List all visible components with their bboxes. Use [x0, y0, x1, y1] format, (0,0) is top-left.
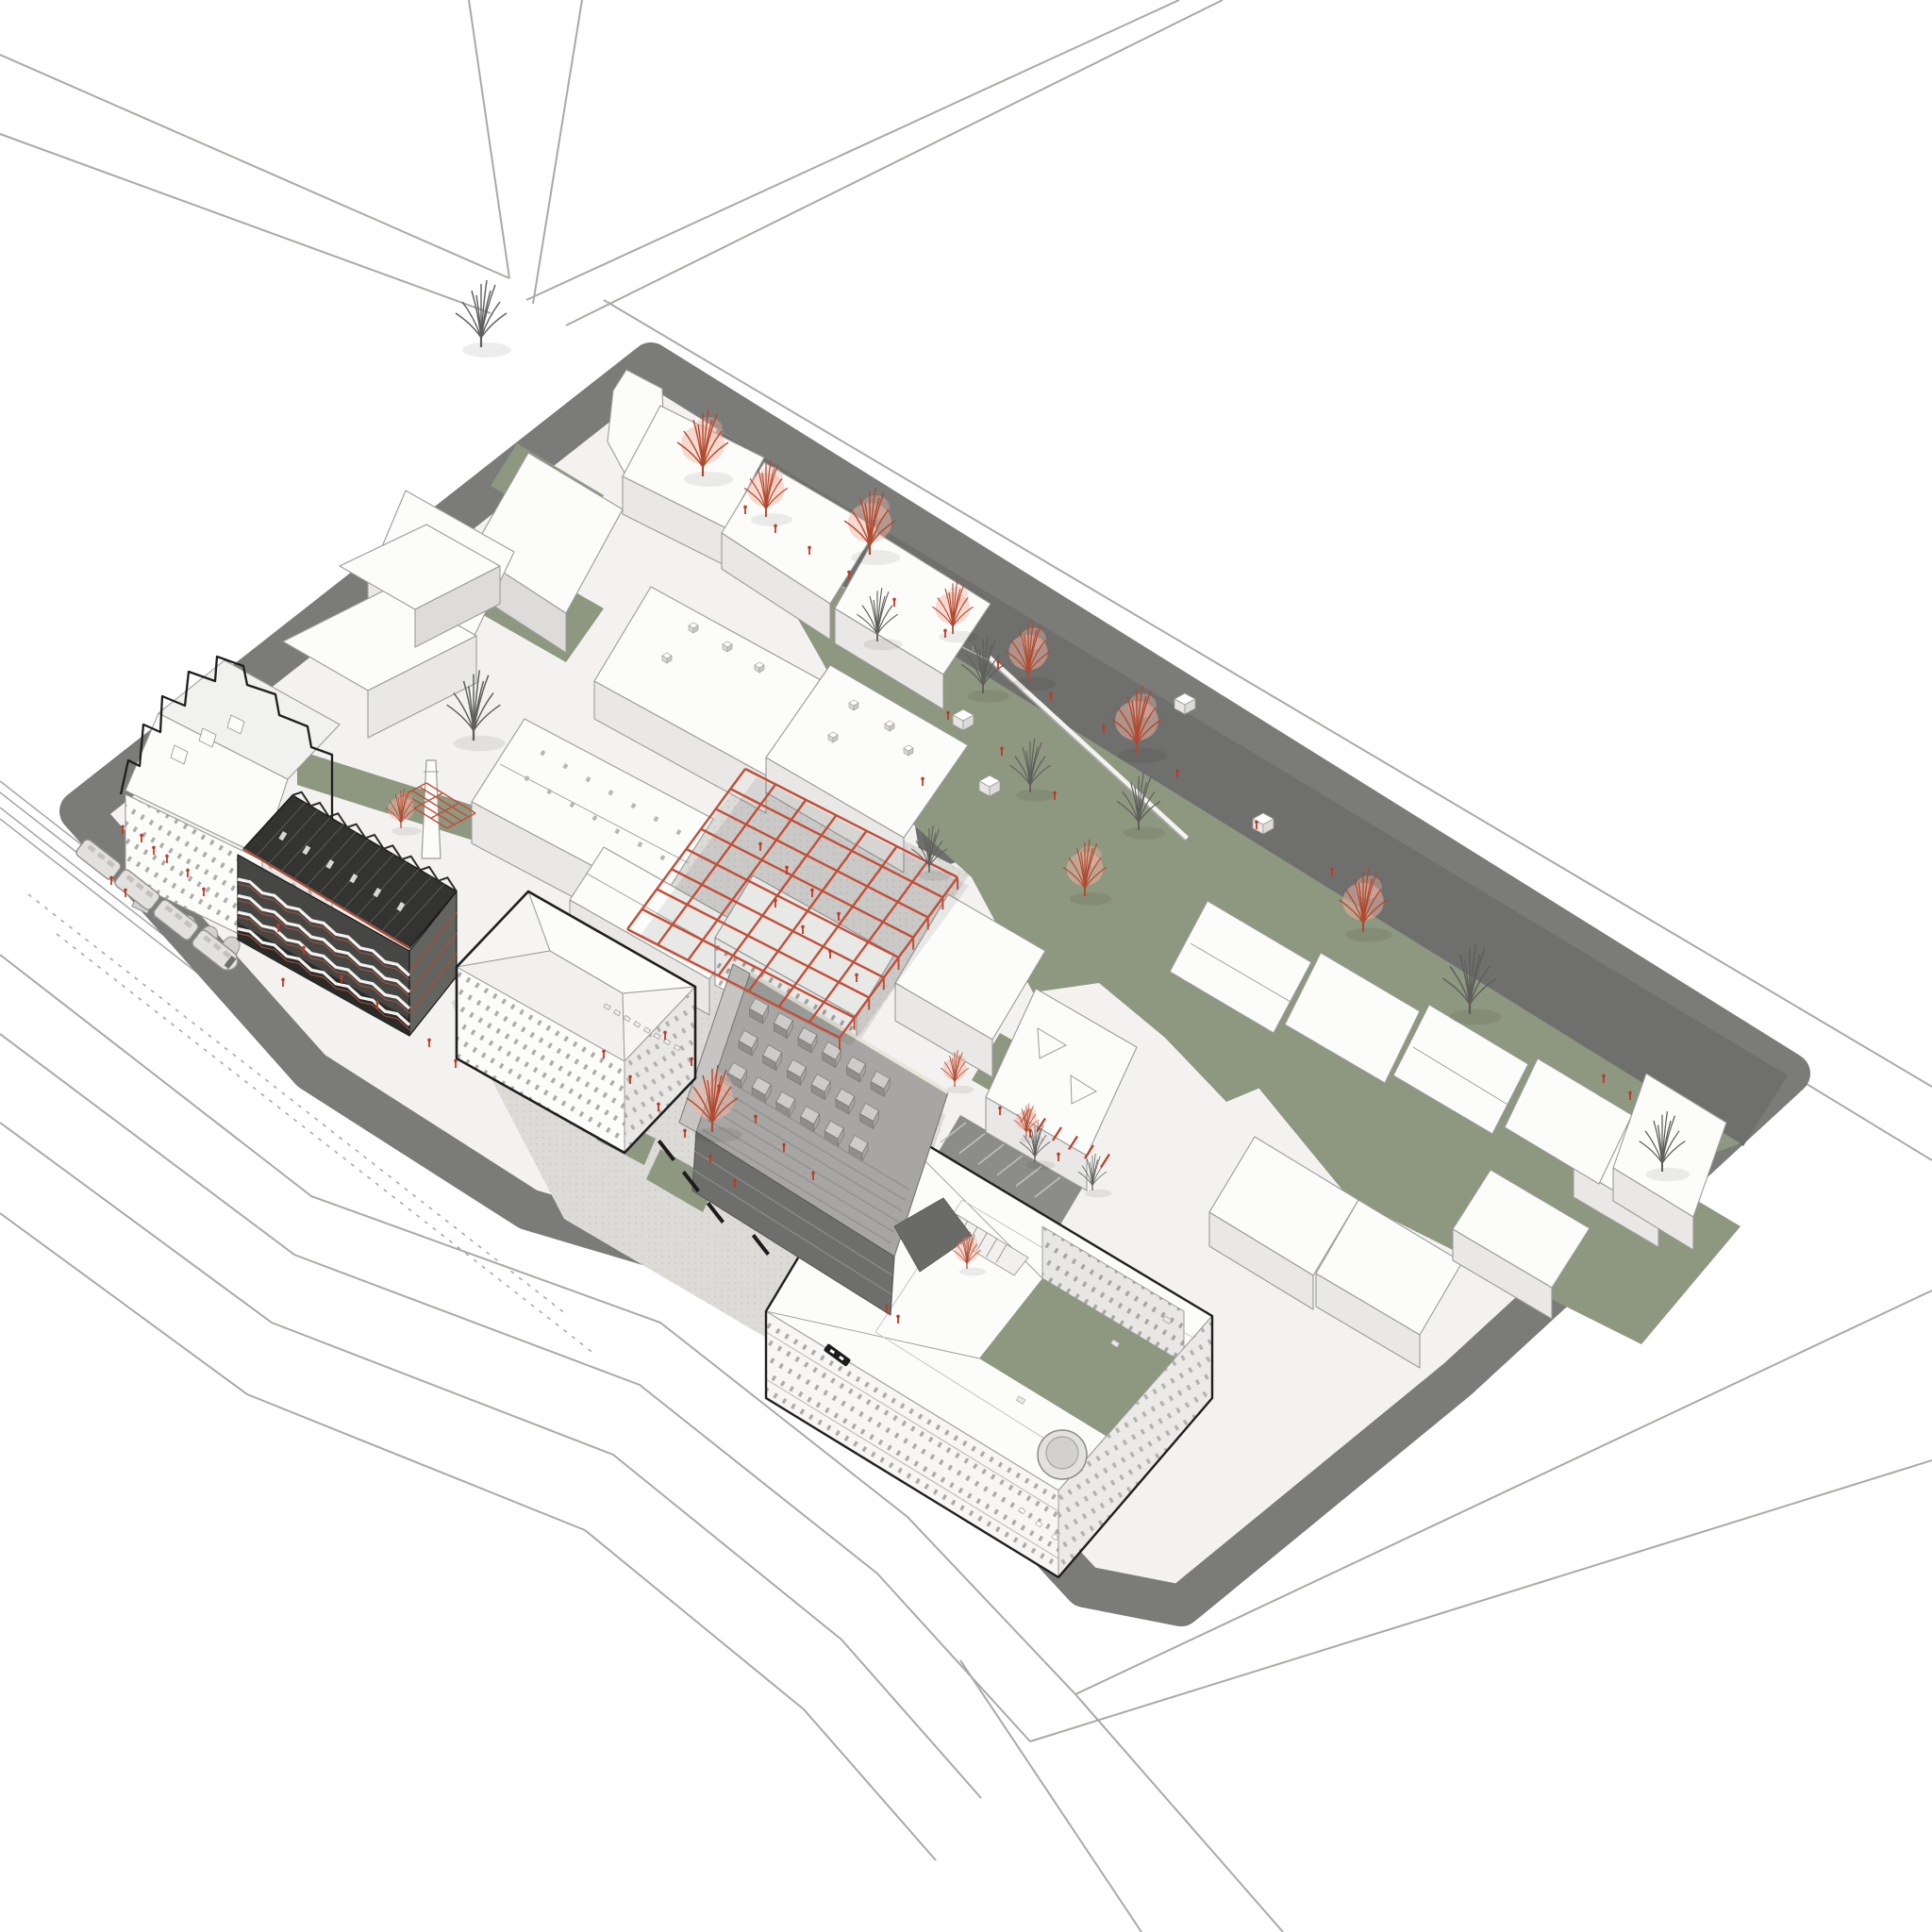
tree-bare	[456, 280, 511, 358]
site-axonometric-drawing	[0, 0, 1932, 1932]
axonometric-masterplan-illustration	[0, 0, 1932, 1932]
